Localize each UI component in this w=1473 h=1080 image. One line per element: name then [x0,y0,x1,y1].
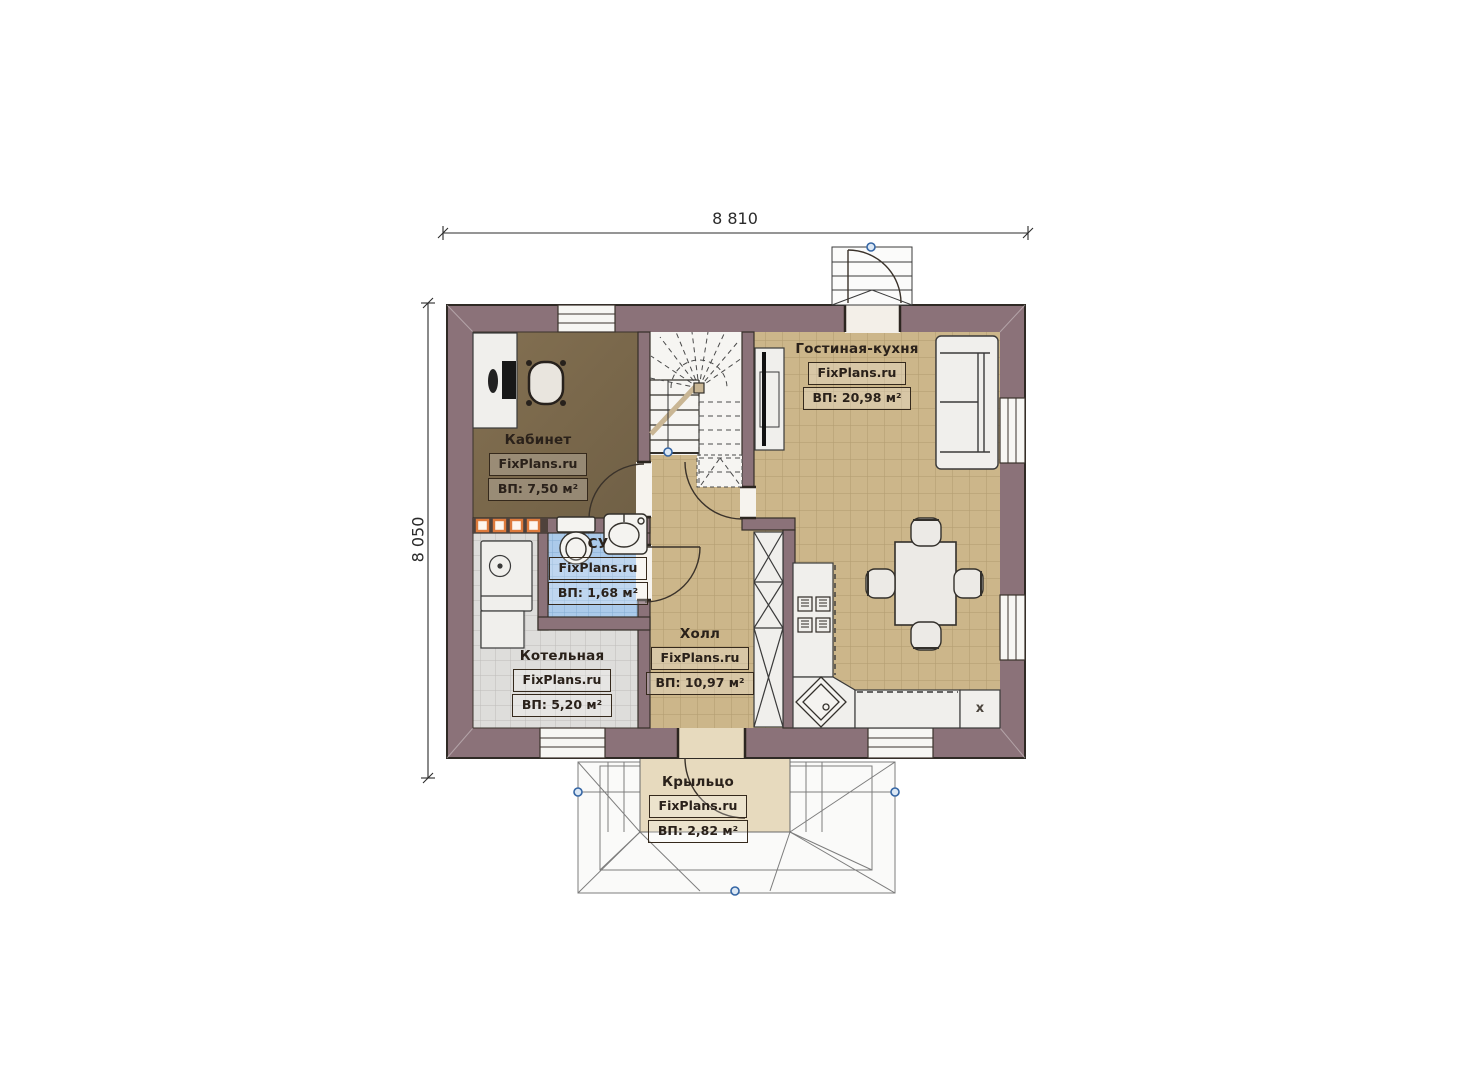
area-box: ВП: 10,97 м² [646,672,755,695]
dimension-width-label: 8 810 [685,209,785,228]
kitchen-counter-bottom [855,690,960,728]
room-name: Холл [680,626,720,642]
chair-right [954,569,983,598]
watermark-box: FixPlans.ru [651,647,750,670]
room-name: Кабинет [505,432,572,448]
area-box: ВП: 1,68 м² [548,582,648,605]
hall-living-passage [740,487,756,518]
desk [473,333,517,428]
desk-chair-base [488,369,498,393]
room-name: СУ [588,536,609,552]
room-label-kabinet: Кабинет FixPlans.ru ВП: 7,50 м² [468,432,608,501]
floor-plan-page: 8 810 8 050 Гостиная-кухня FixPlans.ru В… [0,0,1473,1080]
room-name: Котельная [520,648,605,664]
sofa [936,336,998,469]
floor-plan-drawing [0,0,1473,1080]
watermark-box: FixPlans.ru [649,795,748,818]
room-name: Гостиная-кухня [795,341,918,357]
boiler-unit [481,541,532,648]
watermark-box: FixPlans.ru [808,362,907,385]
kitchen-counter-left [793,563,835,677]
window-top [558,305,615,332]
watermark-box: FixPlans.ru [489,453,588,476]
room-label-su: СУ FixPlans.ru ВП: 1,68 м² [528,536,668,605]
tv-stand [755,348,784,450]
chair-left [866,569,895,598]
entrance-door-opening [845,304,900,333]
watermark-box: FixPlans.ru [513,669,612,692]
area-box: ВП: 5,20 м² [512,694,612,717]
dimension-line-top [438,226,1033,240]
area-box: ВП: 2,82 м² [648,820,748,843]
front-door-opening [678,728,745,758]
fridge-label: x [960,701,1000,716]
watermark-box: FixPlans.ru [549,557,648,580]
window-right-upper [1000,398,1025,463]
heated-wall-strip [473,518,548,533]
room-label-holl: Холл FixPlans.ru ВП: 10,97 м² [630,626,770,695]
kabinet-door-opening [636,462,652,517]
chair-top [911,518,941,546]
room-label-kotelnaya: Котельная FixPlans.ru ВП: 5,20 м² [492,648,632,717]
area-box: ВП: 7,50 м² [488,478,588,501]
tv [762,352,766,446]
dimension-height-label: 8 050 [409,502,428,578]
monitor [502,361,516,399]
dining-table [895,542,956,625]
window-right-lower [1000,595,1025,660]
room-label-kryltso: Крыльцо FixPlans.ru ВП: 2,82 м² [628,774,768,843]
chair-bottom [911,622,941,650]
room-label-gostinaya: Гостиная-кухня FixPlans.ru ВП: 20,98 м² [787,341,927,410]
window-bottom-left [540,728,605,758]
room-name: Крыльцо [662,774,734,790]
window-bottom-right [868,728,933,758]
area-box: ВП: 20,98 м² [803,387,912,410]
office-chair [526,360,566,406]
